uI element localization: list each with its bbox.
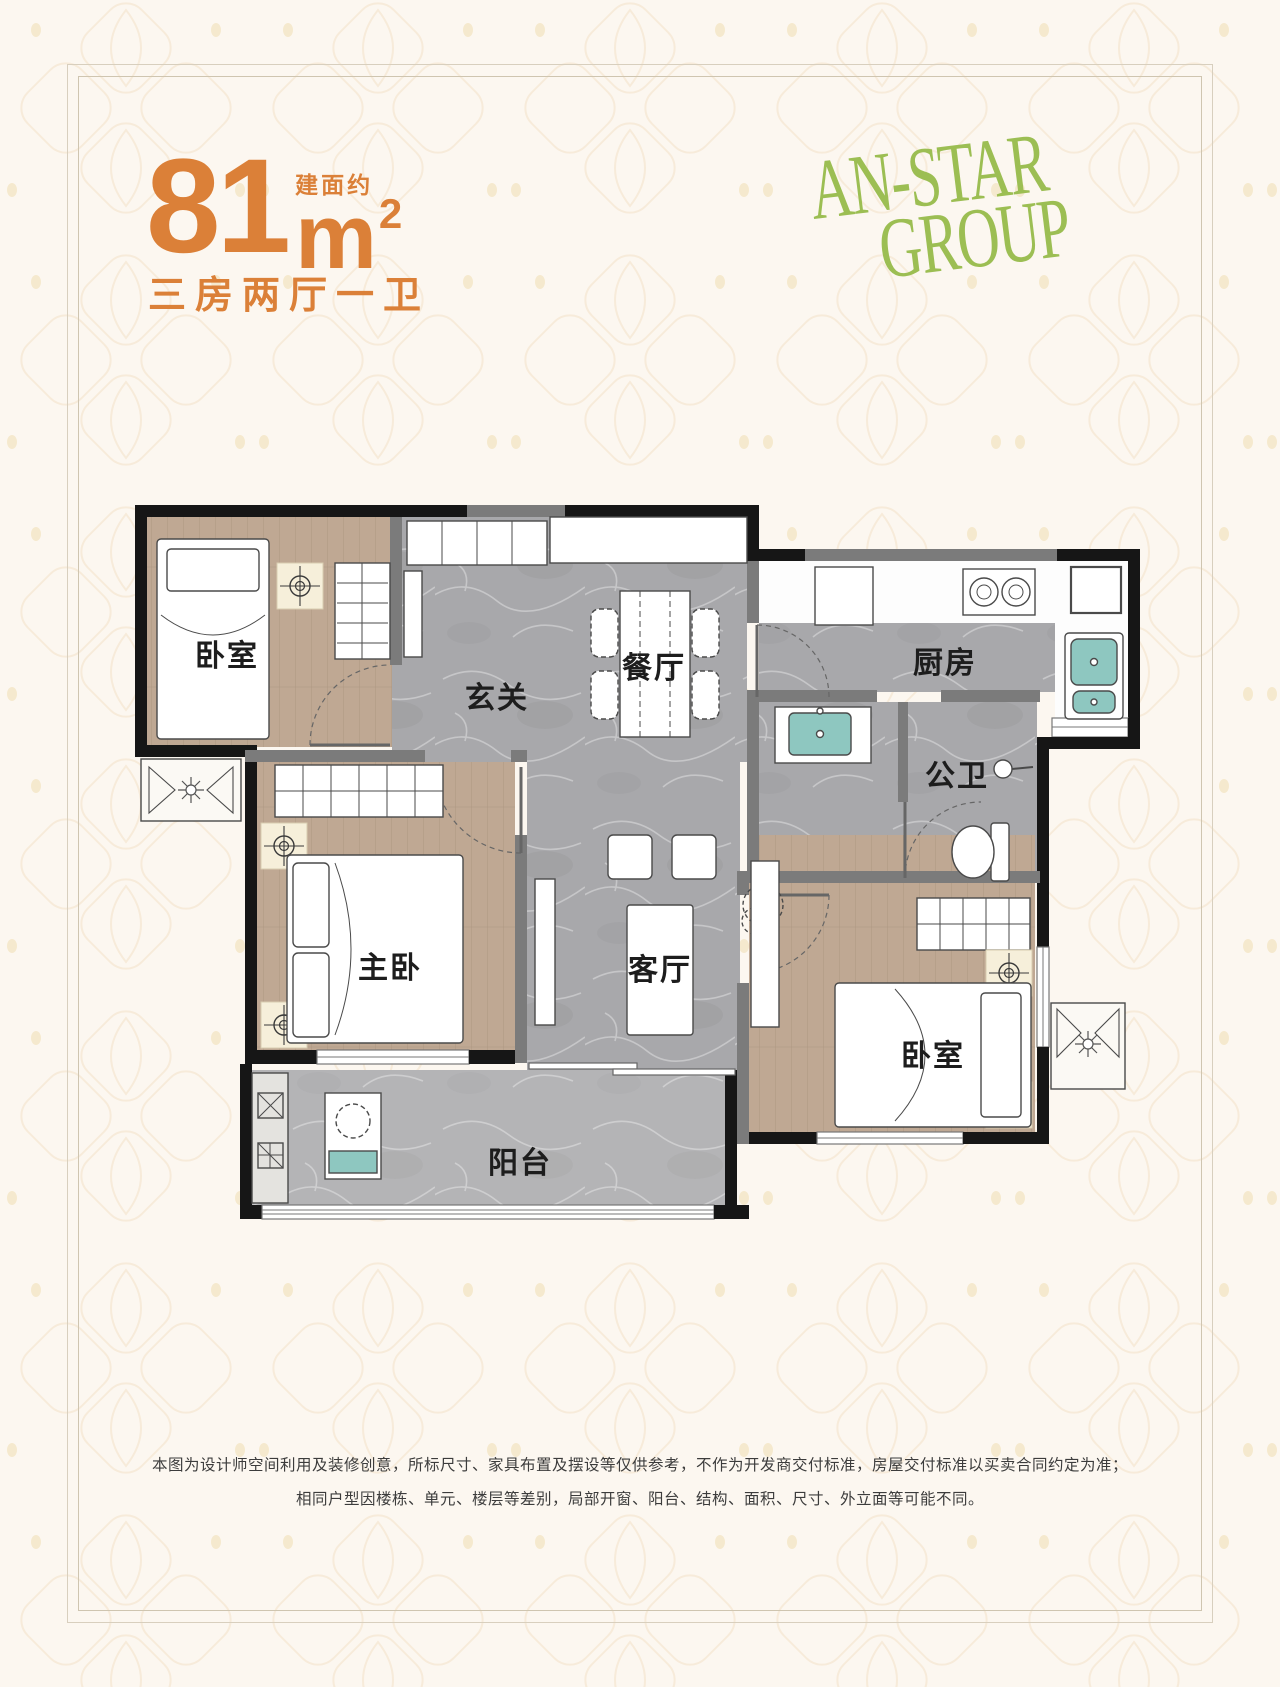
washing-machine-front: [329, 1151, 377, 1173]
shoe-cabinet: [404, 571, 422, 657]
pillow: [293, 863, 329, 947]
stool: [608, 835, 652, 879]
ac-platform-right: [1051, 1003, 1125, 1089]
gas-stove: [963, 569, 1035, 615]
room-label-bedroom2: 卧室: [901, 1031, 965, 1075]
dining-chair: [591, 609, 618, 657]
dining-chair: [692, 671, 719, 719]
logo-line-2: GROUP: [875, 189, 1099, 288]
toilet-bowl: [952, 826, 994, 878]
area-unit-superscript: 2: [379, 190, 402, 238]
room-label-dining: 餐厅: [622, 643, 686, 687]
room-label-bedroom1: 卧室: [195, 631, 259, 675]
bedroom2-side-cabinet: [751, 861, 779, 1027]
stool: [672, 835, 716, 879]
anstar-group-logo: AN-STAR GROUP: [806, 121, 1109, 276]
floor-plan: 卧室 玄关 餐厅 厨房 公卫 主卧 客厅 卧室 阳台: [135, 505, 1145, 1220]
floor-plan-drawing: [135, 505, 1145, 1220]
fridge: [1071, 567, 1121, 613]
room-label-bathroom: 公卫: [925, 751, 989, 795]
room-label-master: 主卧: [358, 943, 422, 987]
disclaimer-line-2: 相同户型因楼栋、单元、楼层等差别，局部开窗、阳台、结构、面积、尺寸、外立面等可能…: [0, 1487, 1280, 1509]
pillow: [167, 549, 259, 591]
ac-platform-left: [141, 759, 241, 821]
room-label-living: 客厅: [628, 945, 692, 989]
dining-chair: [692, 609, 719, 657]
tv-cabinet: [535, 879, 555, 1025]
disclaimer-line-1: 本图为设计师空间利用及装修创意，所标尺寸、家具布置及摆设等仅供参考，不作为开发商…: [0, 1453, 1280, 1475]
room-label-balcony: 阳台: [488, 1138, 552, 1182]
layout-description: 三房两厅一卫: [148, 264, 430, 319]
kitchen-cabinet: [815, 567, 873, 625]
pillow: [293, 953, 329, 1037]
dining-chair: [591, 671, 618, 719]
area-value: 81: [146, 140, 287, 274]
shower-head: [994, 760, 1012, 778]
area-unit-block: 建面约 m 2: [295, 166, 402, 275]
room-label-entry: 玄关: [465, 673, 529, 717]
room-label-kitchen: 厨房: [913, 638, 977, 682]
dining-sideboard: [550, 517, 747, 563]
pillow: [981, 993, 1021, 1117]
area-title: 81 建面约 m 2: [146, 140, 402, 275]
